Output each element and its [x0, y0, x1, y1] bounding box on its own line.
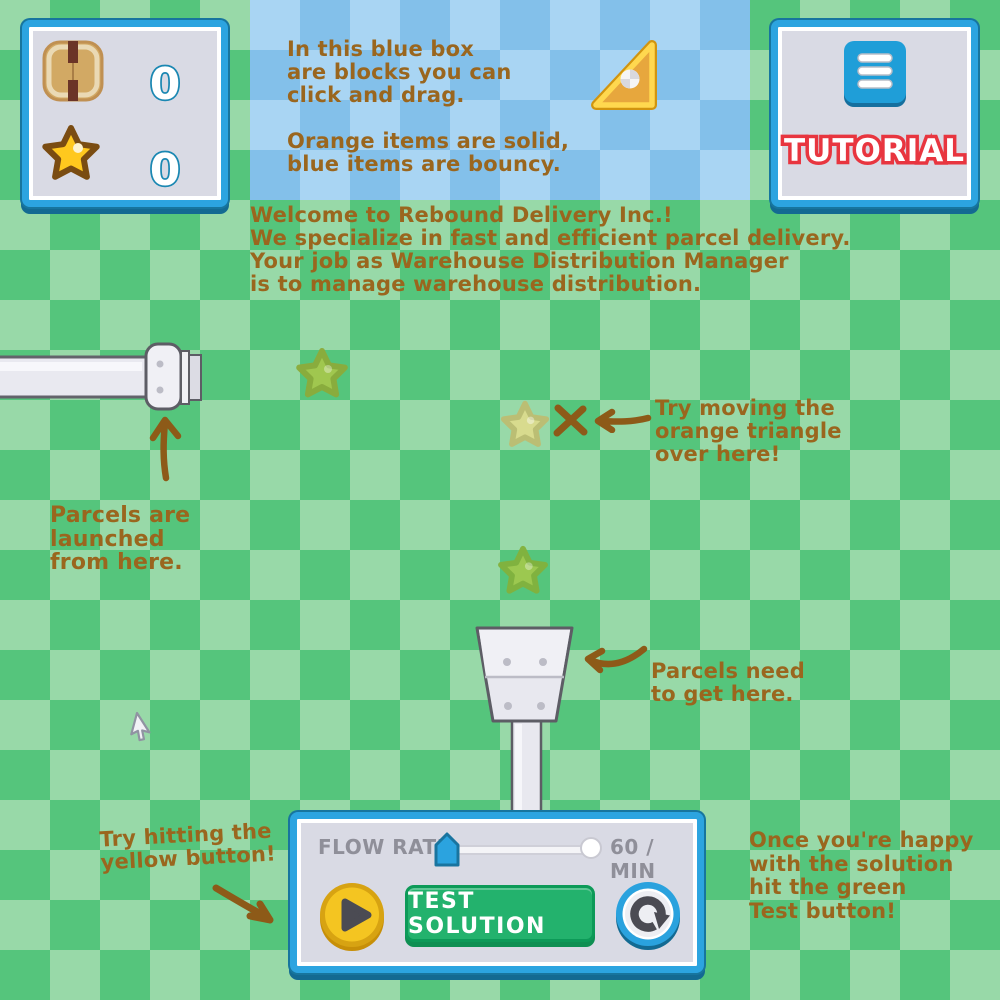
control-panel: FLOW RATE: 60 / MIN TEST SOLUTION	[290, 812, 704, 973]
triangle-arrow	[588, 405, 652, 433]
orange-triangle-block[interactable]	[588, 38, 660, 112]
triangle-note: Try moving the orange triangle over here…	[655, 397, 842, 466]
star-count: 0	[125, 145, 205, 196]
delivery-hopper	[460, 620, 580, 820]
reset-button[interactable]	[615, 881, 681, 951]
test-note: Once you're happy with the solution hit …	[749, 829, 974, 923]
parcel-icon	[40, 38, 106, 104]
ghost-star-1	[292, 345, 352, 405]
flow-rate-slider-track[interactable]	[455, 845, 599, 855]
play-button[interactable]	[319, 882, 385, 952]
parcel-launcher	[0, 340, 210, 415]
hopper-note: Parcels need to get here.	[651, 660, 805, 706]
launcher-note: Parcels are launched from here.	[50, 504, 190, 575]
menu-button[interactable]	[843, 40, 907, 108]
drag-handle-icon	[621, 70, 640, 89]
flow-rate-value: 60 / MIN	[610, 835, 697, 883]
block-tray: In this blue box are blocks you can clic…	[250, 0, 750, 200]
ghost-star-2	[497, 398, 553, 454]
block-tray-help-text: In this blue box are blocks you can clic…	[287, 38, 569, 176]
flow-rate-slider-handle[interactable]	[433, 831, 461, 869]
counters-panel: 0 0	[22, 20, 228, 207]
menu-icon	[858, 54, 892, 88]
test-solution-button[interactable]: TEST SOLUTION	[405, 885, 595, 942]
flow-rate-slider-end	[580, 837, 602, 859]
intro-text: Welcome to Rebound Delivery Inc.! We spe…	[250, 204, 851, 296]
tutorial-title: TUTORIAL	[778, 133, 971, 169]
cursor-icon	[128, 706, 168, 754]
play-button-arrow	[208, 880, 278, 928]
star-icon	[36, 120, 106, 190]
parcel-count: 0	[125, 59, 205, 110]
launcher-arrow	[145, 412, 190, 484]
test-solution-label: TEST SOLUTION	[408, 889, 592, 939]
x-target-mark	[552, 402, 590, 438]
play-note: Try hitting the yellow button!	[99, 819, 276, 874]
hopper-arrow	[578, 640, 648, 676]
game-stage: In this blue box are blocks you can clic…	[0, 0, 1000, 1000]
ghost-star-3	[494, 543, 552, 601]
tutorial-panel: TUTORIAL	[771, 20, 978, 207]
